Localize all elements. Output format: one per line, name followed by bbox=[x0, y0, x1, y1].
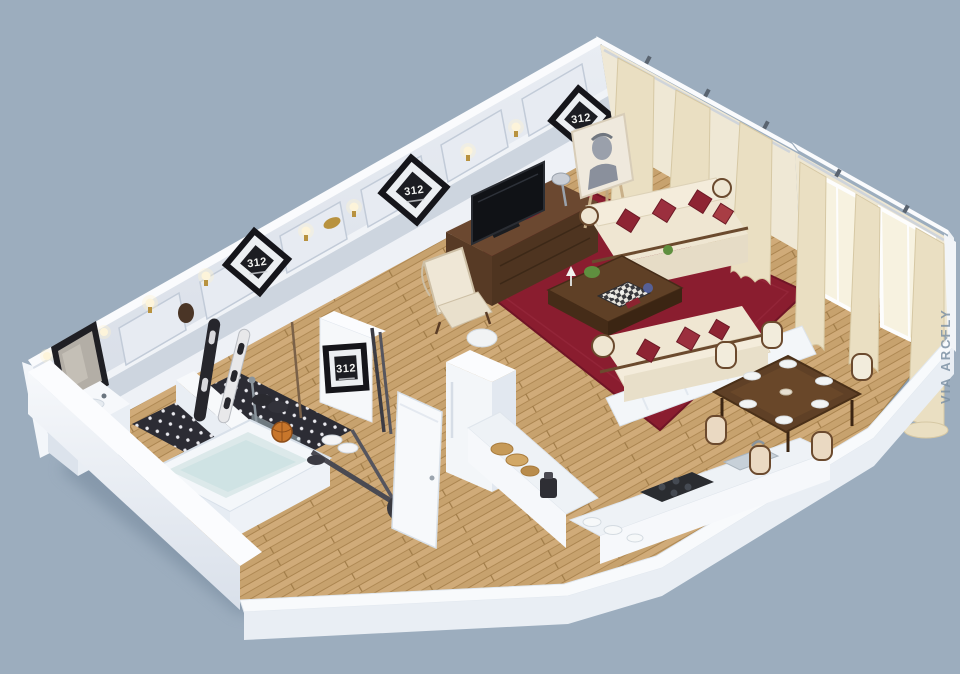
plate-icon bbox=[816, 377, 833, 385]
floorplan-canvas: 312 312 312 bbox=[0, 0, 960, 674]
plate-icon bbox=[744, 372, 761, 380]
plate-icon bbox=[740, 400, 757, 408]
boot-icon bbox=[252, 394, 272, 406]
scroll-arm bbox=[580, 207, 598, 225]
watermark-text: VIA ARCFLY bbox=[938, 308, 953, 404]
plate-icon bbox=[583, 518, 601, 527]
plate-icon bbox=[776, 416, 793, 424]
sneaker-icon bbox=[322, 435, 342, 445]
sneaker-icon bbox=[338, 443, 358, 453]
open-door bbox=[392, 392, 442, 548]
plate-icon bbox=[627, 534, 643, 542]
portrait-face bbox=[592, 136, 612, 160]
green-decor-icon bbox=[663, 245, 673, 255]
scroll-arm bbox=[713, 179, 731, 197]
plant-icon bbox=[584, 266, 600, 278]
basketball-icon bbox=[272, 422, 292, 442]
glass-decor-icon bbox=[643, 283, 653, 293]
floorplan-render: 312 312 312 bbox=[0, 0, 960, 674]
faucet-icon bbox=[102, 394, 107, 399]
plate-icon bbox=[812, 400, 829, 408]
svg-text:312: 312 bbox=[336, 362, 357, 375]
number-frame-312: 312 bbox=[322, 343, 369, 394]
scroll-arm bbox=[592, 335, 614, 357]
plate-icon bbox=[604, 526, 622, 535]
pouf bbox=[467, 329, 497, 347]
center-bowl-icon bbox=[780, 389, 792, 395]
door-handle-icon bbox=[430, 476, 435, 481]
boot-icon bbox=[268, 401, 288, 413]
mask-decor-icon bbox=[178, 303, 194, 323]
plate-icon bbox=[780, 360, 797, 368]
shoe-icon bbox=[307, 455, 325, 465]
